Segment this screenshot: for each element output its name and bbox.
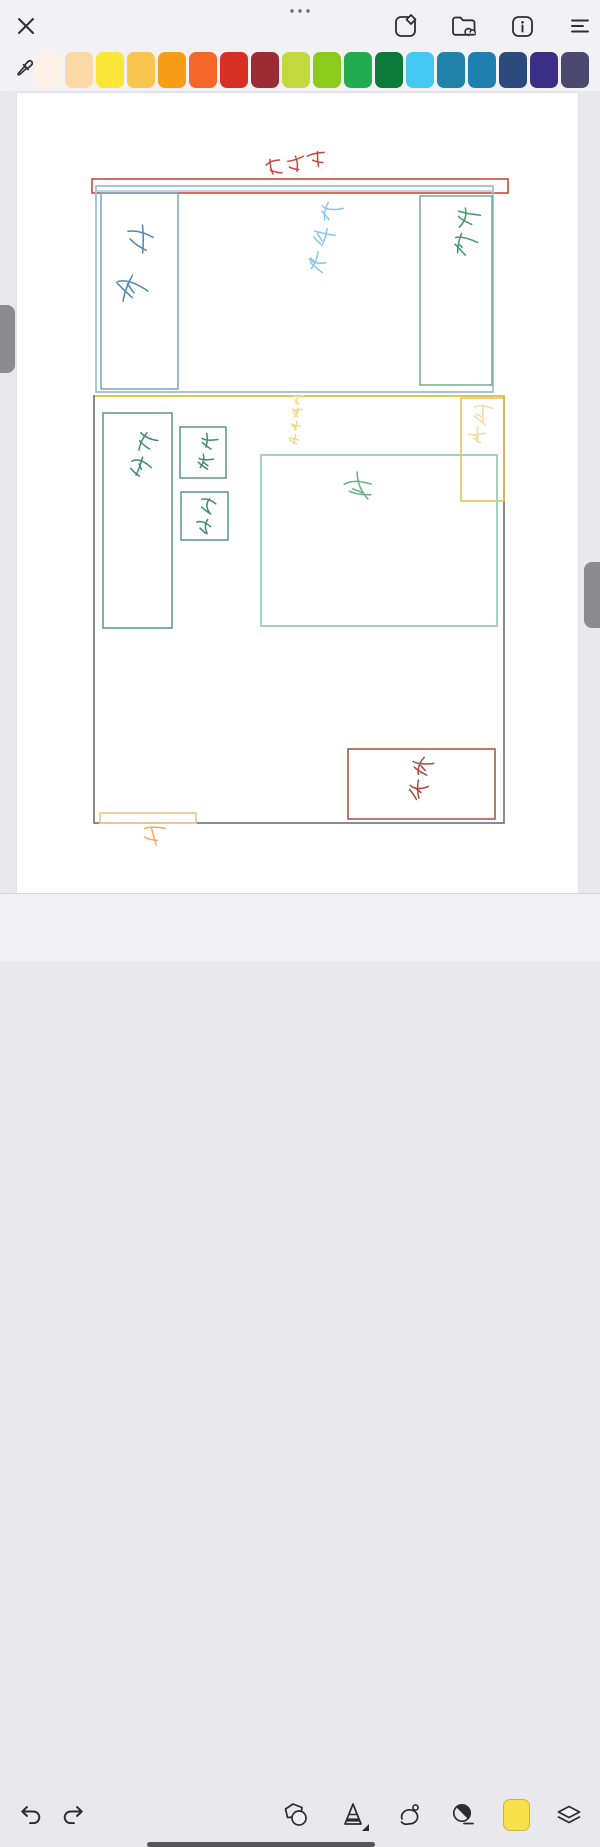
share-note-icon (393, 13, 419, 39)
left-sidebar-handle[interactable] (0, 305, 15, 373)
undo-button[interactable] (14, 1798, 48, 1832)
undo-icon (17, 1802, 45, 1828)
color-swatch-5[interactable] (189, 52, 217, 88)
eraser-icon (448, 1801, 478, 1829)
eraser-tool-button[interactable] (446, 1798, 480, 1832)
info-icon (510, 14, 535, 39)
menu-lines-icon (569, 17, 591, 35)
menu-button[interactable] (566, 12, 594, 40)
folder-cloud-button[interactable] (450, 12, 478, 40)
color-swatch-6[interactable] (220, 52, 248, 88)
color-swatch-4[interactable] (158, 52, 186, 88)
redo-icon (59, 1802, 87, 1828)
color-swatch-16[interactable] (530, 52, 558, 88)
more-options-button[interactable] (286, 4, 314, 18)
color-swatch-3[interactable] (127, 52, 155, 88)
color-swatch-9[interactable] (313, 52, 341, 88)
current-color-swatch[interactable] (503, 1799, 530, 1831)
lasso-tool-button[interactable] (392, 1798, 426, 1832)
color-swatch-0[interactable] (34, 52, 62, 88)
color-swatch-10[interactable] (344, 52, 372, 88)
eyedropper-icon (9, 55, 37, 85)
redo-button[interactable] (56, 1798, 90, 1832)
color-swatch-17[interactable] (561, 52, 589, 88)
color-swatch-8[interactable] (282, 52, 310, 88)
scrollbar-handle[interactable] (584, 562, 600, 628)
lasso-icon (394, 1801, 424, 1829)
document-info-button[interactable] (508, 12, 536, 40)
layers-icon (554, 1801, 584, 1829)
color-swatch-11[interactable] (375, 52, 403, 88)
folder-cloud-icon (450, 13, 478, 39)
color-swatch-2[interactable] (96, 52, 124, 88)
share-note-button[interactable] (392, 12, 420, 40)
layers-button[interactable] (552, 1798, 586, 1832)
color-swatch-1[interactable] (65, 52, 93, 88)
color-swatch-row (34, 52, 589, 88)
drawing-page[interactable] (17, 93, 578, 893)
color-palette-bar (0, 50, 600, 91)
close-icon (15, 15, 37, 37)
shapes-tool-button[interactable] (279, 1798, 313, 1832)
top-toolbar (0, 0, 600, 50)
color-swatch-14[interactable] (468, 52, 496, 88)
close-button[interactable] (14, 14, 38, 38)
canvas-area[interactable] (0, 91, 600, 893)
color-swatch-13[interactable] (437, 52, 465, 88)
bottom-toolbar (0, 893, 600, 961)
color-swatch-7[interactable] (251, 52, 279, 88)
home-indicator (147, 1842, 375, 1847)
color-swatch-15[interactable] (499, 52, 527, 88)
tool-options-indicator (362, 1824, 369, 1831)
shapes-icon (281, 1801, 311, 1829)
color-swatch-12[interactable] (406, 52, 434, 88)
more-dots-icon (287, 6, 313, 16)
